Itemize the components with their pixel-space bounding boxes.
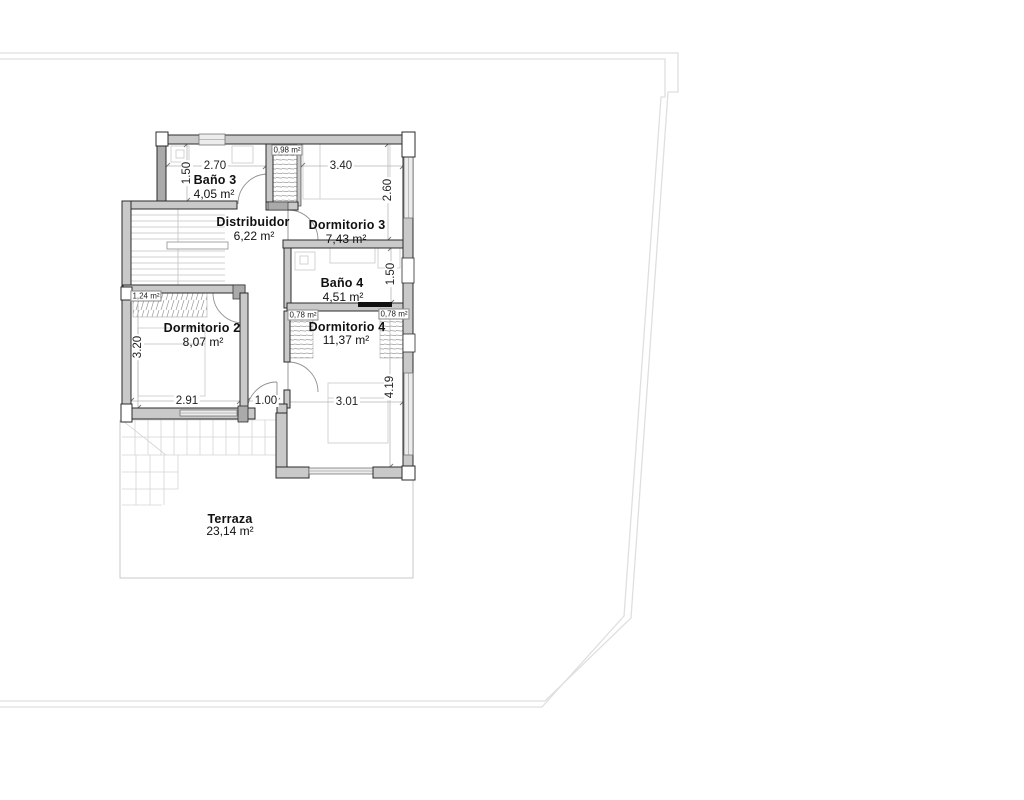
- bathroom4-sink: [295, 252, 315, 270]
- wall-left-exterior: [122, 201, 131, 420]
- bathroom4-counter: [330, 248, 375, 263]
- closet-label-dorm4-left: 0,78 m²: [287, 310, 318, 321]
- room-area-distribuidor: 6,22 m²: [234, 229, 275, 243]
- dim-bano4-height: 1.50: [385, 261, 397, 287]
- door-dormitorio4: [288, 362, 318, 392]
- wall-jut-left: [276, 413, 287, 474]
- bedroom4-bed: [328, 383, 388, 443]
- wall-bano4-left: [284, 248, 291, 308]
- wall-closet098-bottom-dark: [268, 202, 288, 210]
- pillar-northeast: [402, 132, 415, 157]
- closet-label-dorm4-right: 0,78 m²: [378, 309, 409, 320]
- pillar-northwest: [156, 132, 168, 146]
- room-label-bano3: Baño 3: [194, 173, 237, 187]
- room-area-dormitorio4: 11,37 m²: [323, 333, 369, 347]
- dim-dorm4-width: 3.01: [334, 396, 360, 408]
- room-label-distribuidor: Distribuidor: [216, 215, 289, 229]
- dim-dorm3-width: 3.40: [328, 160, 354, 172]
- room-label-dormitorio3: Dormitorio 3: [309, 218, 386, 232]
- room-area-bano4: 4,51 m²: [323, 290, 364, 304]
- wall-bano3-left: [157, 146, 166, 205]
- door-bano3: [238, 174, 268, 204]
- staircase: [131, 209, 228, 287]
- wall-bano3-bottom: [123, 201, 237, 209]
- room-area-terraza: 23,14 m²: [206, 524, 253, 538]
- room-label-dormitorio2: Dormitorio 2: [164, 321, 241, 335]
- exterior-steps: [122, 420, 278, 505]
- dim-dorm4-height: 4.19: [384, 374, 396, 400]
- pillar-dorm2-southeast: [238, 406, 248, 422]
- dim-bano3-width: 2.70: [202, 160, 228, 172]
- wall-jut-bottom-right: [373, 467, 403, 478]
- floor-plan-canvas: Baño 3 4,05 m² Distribuidor 6,22 m² Dorm…: [0, 0, 1024, 800]
- pillar-southeast: [402, 466, 415, 480]
- pillar-southwest: [121, 404, 132, 422]
- room-label-bano4: Baño 4: [321, 276, 364, 290]
- wall-jut-bottom-left: [276, 467, 309, 478]
- window-dorm4-east-small: [403, 334, 415, 352]
- wall-top: [157, 135, 413, 144]
- dim-bano3-height: 1.50: [181, 160, 193, 186]
- window-bano4-east: [402, 258, 414, 283]
- dim-dorm2-width: 2.91: [174, 395, 200, 407]
- floor-plan-drawing: [0, 0, 1024, 800]
- dim-entry-width: 1.00: [253, 395, 279, 407]
- room-area-dormitorio2: 8,07 m²: [183, 335, 224, 349]
- room-label-dormitorio4: Dormitorio 4: [309, 320, 386, 334]
- bathroom3-toilet: [232, 146, 253, 163]
- room-area-bano3: 4,05 m²: [194, 187, 235, 201]
- closet-label-bano3: 0,98 m²: [271, 145, 302, 156]
- dim-dorm2-height: 3.20: [132, 334, 144, 360]
- dim-dorm3-height: 2.60: [382, 177, 394, 203]
- property-boundary: [0, 53, 678, 707]
- wall-dorm2-right: [240, 293, 248, 408]
- closet-label-dorm2: 1,24 m²: [130, 291, 161, 302]
- room-area-dormitorio3: 7,43 m²: [326, 232, 367, 246]
